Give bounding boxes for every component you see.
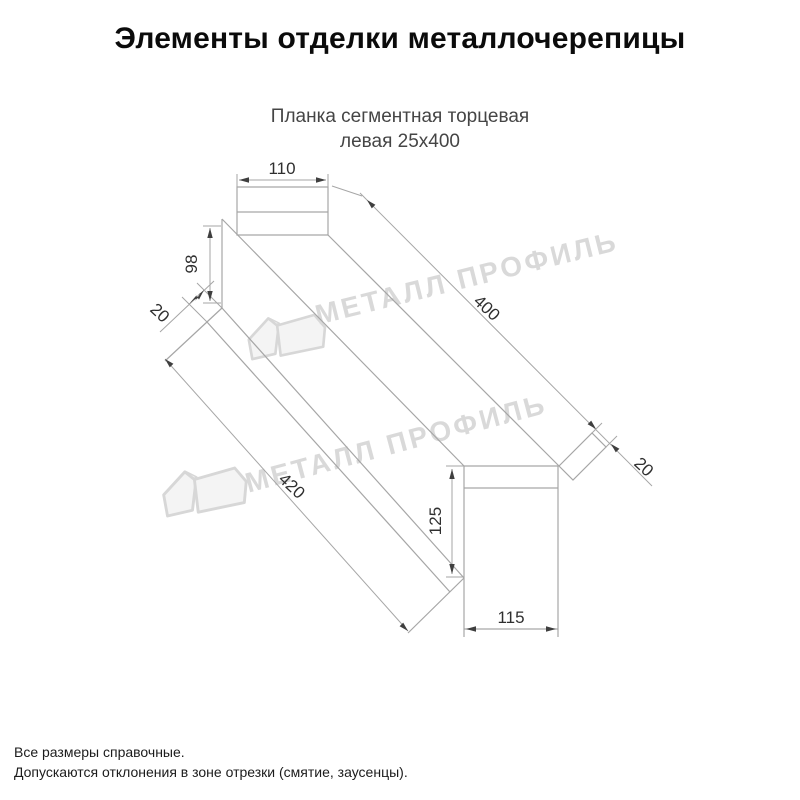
dim-label-end-height: 125 [426, 507, 445, 535]
product-subtitle-line2: левая 25х400 [0, 129, 800, 154]
product-body-lines [165, 187, 606, 637]
product-subtitle-line1: Планка сегментная торцевая [0, 104, 800, 129]
footer-notes: Все размеры справочные. Допускаются откл… [14, 742, 408, 782]
dim-label-end-width: 115 [497, 608, 524, 627]
dimension-labels: 110 98 20 400 420 20 125 115 [146, 159, 657, 627]
product-subtitle: Планка сегментная торцевая левая 25х400 [0, 104, 800, 154]
dimension-lines [160, 174, 652, 631]
dim-label-hem-far: 20 [630, 454, 657, 481]
dim-label-web-height: 98 [182, 255, 201, 274]
dim-label-hem-near: 20 [146, 300, 173, 327]
footer-note-2: Допускаются отклонения в зоне отрезки (с… [14, 762, 408, 782]
page-title: Элементы отделки металлочерепицы [0, 22, 800, 56]
dimension-arrows [165, 177, 619, 631]
dim-label-length-top: 400 [470, 291, 504, 324]
footer-note-1: Все размеры справочные. [14, 742, 408, 762]
dim-label-top-flange-width: 110 [268, 159, 295, 178]
dim-label-length-bottom: 420 [275, 469, 309, 502]
catalog-page: МЕТАЛЛ ПРОФИЛЬ МЕТАЛЛ ПРОФИЛЬ [0, 0, 800, 800]
